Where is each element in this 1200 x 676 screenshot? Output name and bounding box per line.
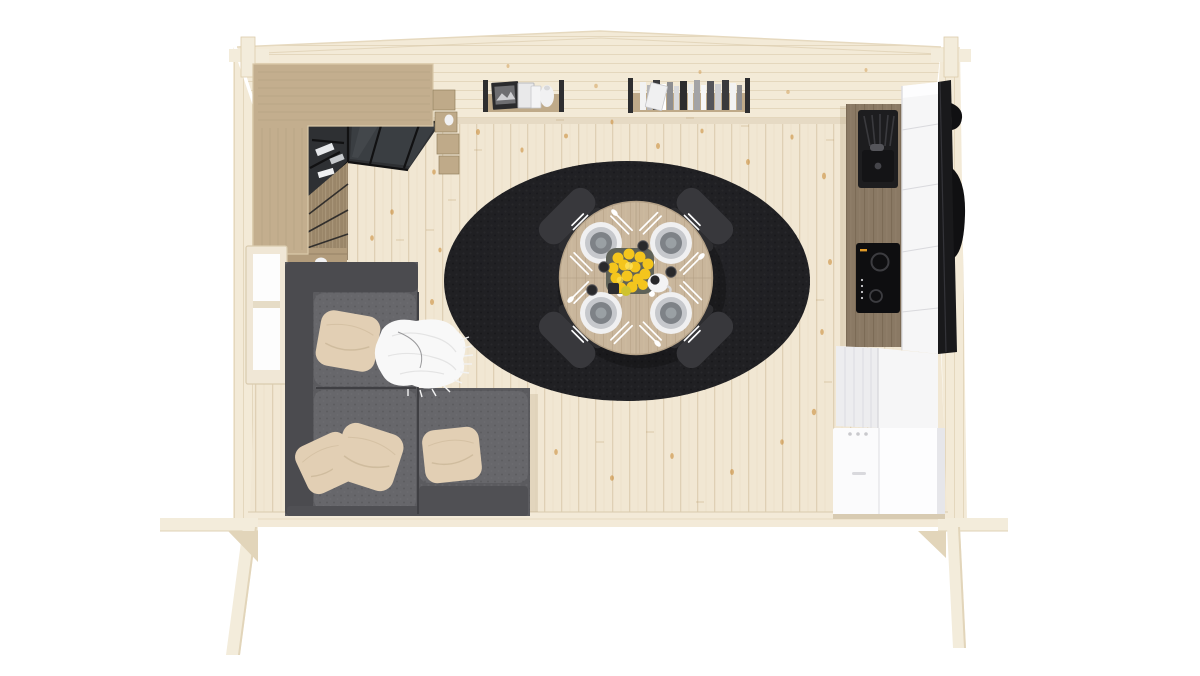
small-vase [445, 115, 454, 126]
fruit-tray [606, 248, 654, 296]
cup-3 [666, 267, 676, 277]
appliance-box [833, 428, 945, 519]
framed-pictures [491, 81, 541, 110]
tall-cabinet [902, 82, 938, 354]
black-side-panel-2 [952, 168, 965, 258]
pillow-4 [421, 426, 483, 485]
appliance-run [833, 346, 945, 519]
green-lemon [621, 286, 631, 296]
room-render [0, 0, 1200, 676]
window [246, 246, 287, 384]
vase [540, 85, 554, 107]
dining-area [444, 161, 810, 401]
gusset-right [918, 531, 946, 558]
books [640, 80, 742, 111]
faucet [870, 144, 884, 151]
cup-2 [599, 262, 609, 272]
sofa-front-edge [287, 506, 528, 516]
cooktop [856, 243, 900, 313]
small-dish [608, 283, 619, 294]
cup-4 [587, 285, 597, 295]
cup-1 [638, 241, 648, 251]
sink [858, 110, 898, 188]
appliance-label [852, 472, 866, 475]
pillow-1 [314, 308, 383, 374]
cabin-base [160, 518, 1008, 655]
